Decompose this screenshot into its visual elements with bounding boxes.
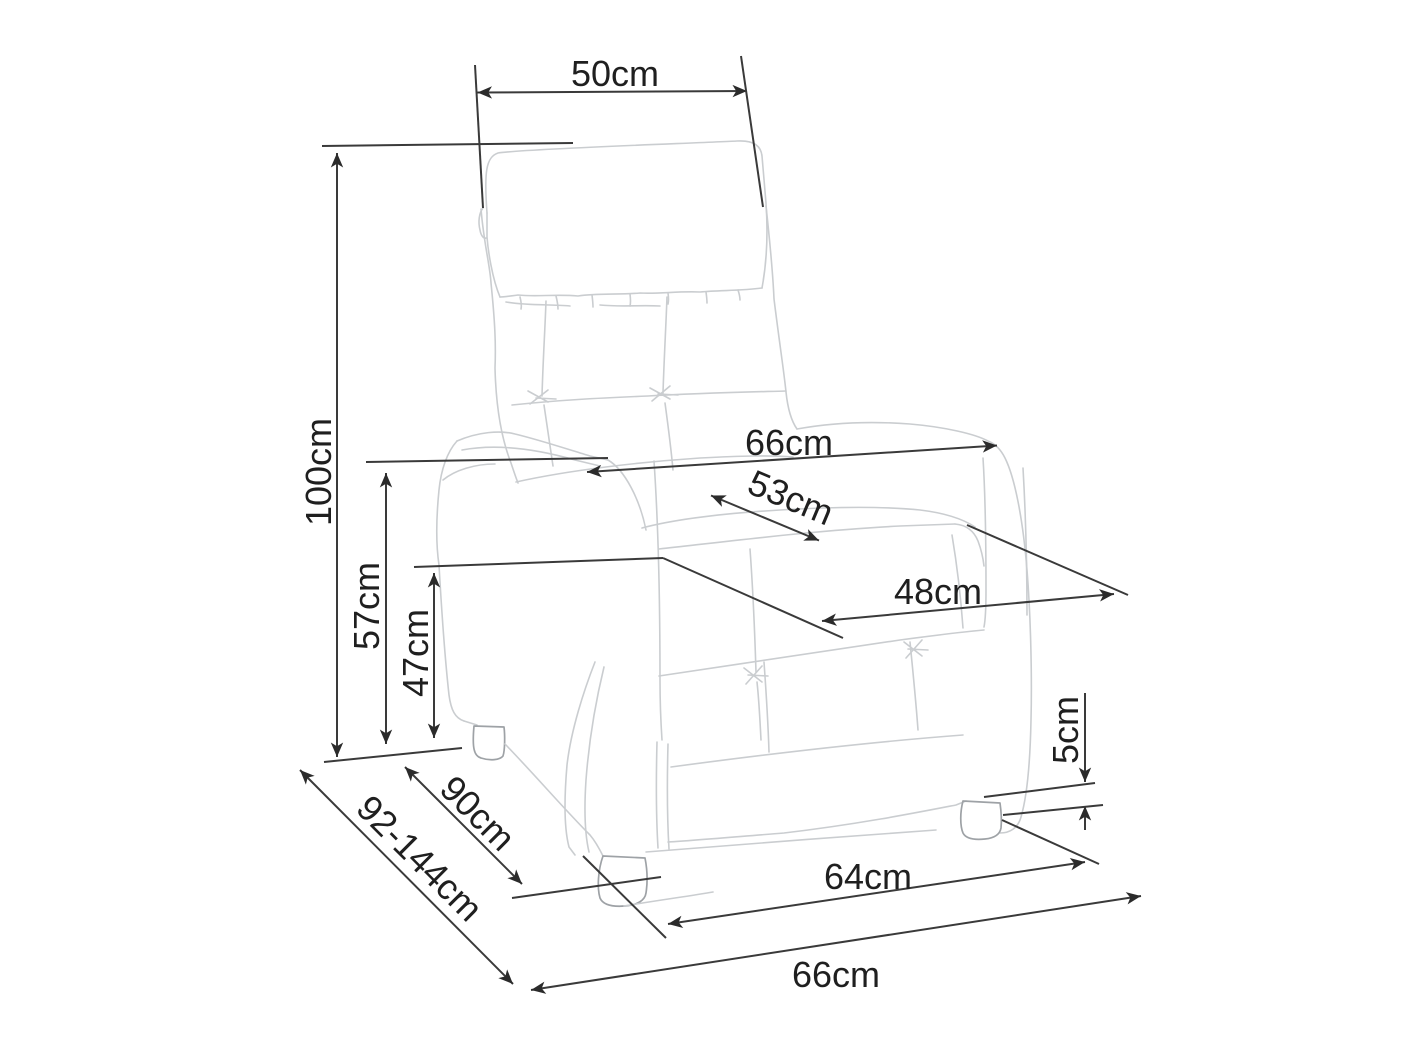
svg-text:66cm: 66cm xyxy=(792,954,880,995)
svg-text:64cm: 64cm xyxy=(824,856,912,897)
svg-text:5cm: 5cm xyxy=(1045,696,1086,764)
svg-text:47cm: 47cm xyxy=(395,609,436,697)
svg-text:57cm: 57cm xyxy=(346,562,387,650)
svg-text:66cm: 66cm xyxy=(745,422,833,463)
svg-text:48cm: 48cm xyxy=(894,571,982,612)
svg-text:100cm: 100cm xyxy=(298,418,339,526)
svg-text:50cm: 50cm xyxy=(571,53,659,94)
